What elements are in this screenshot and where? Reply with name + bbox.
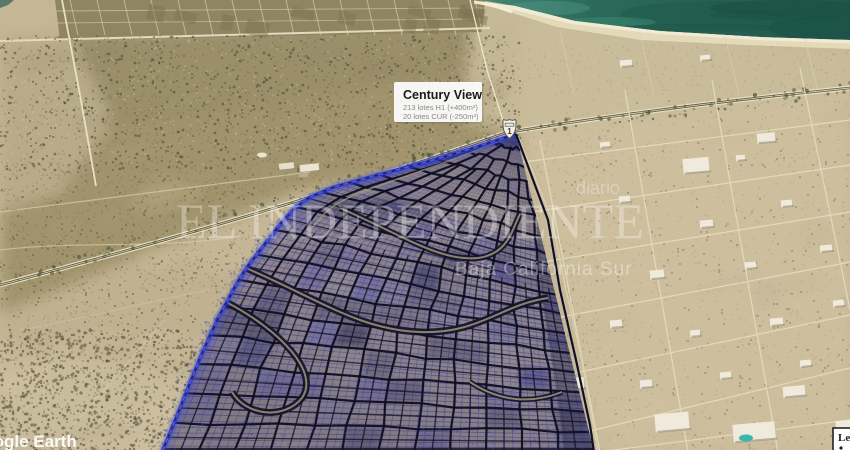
svg-text:213 lotes H1 (+400m²): 213 lotes H1 (+400m²) (403, 103, 478, 112)
svg-text:Century View: Century View (403, 88, 482, 102)
svg-text:1: 1 (507, 127, 512, 136)
svg-text:Google Earth: Google Earth (0, 432, 77, 450)
svg-text:20 lotes CUR (-250m²): 20 lotes CUR (-250m²) (403, 112, 479, 121)
svg-text:Baja California Sur: Baja California Sur (455, 259, 632, 280)
svg-text:Ley: Ley (838, 432, 850, 444)
svg-text:EL INDEPENDIENTE: EL INDEPENDIENTE (176, 193, 644, 249)
